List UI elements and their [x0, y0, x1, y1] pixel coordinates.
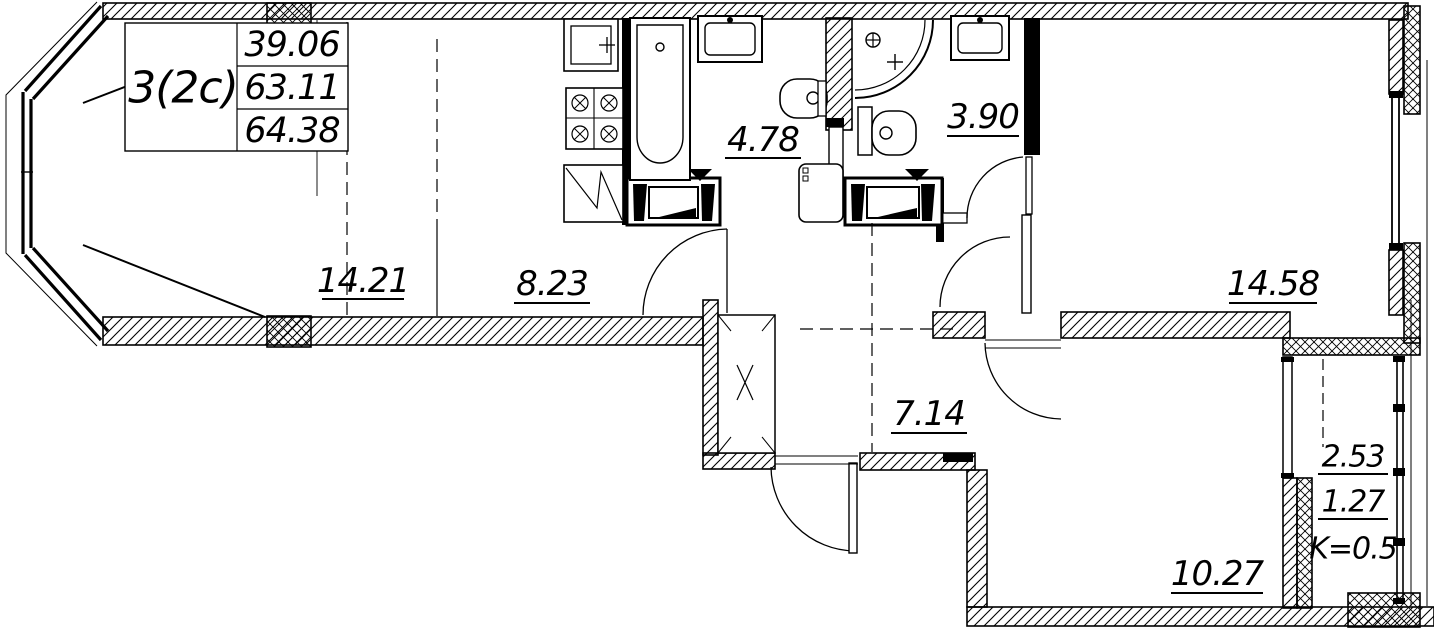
pier-right-top — [1404, 6, 1420, 114]
room-label-wc: 3.90 — [947, 97, 1019, 137]
washing-machine — [799, 164, 843, 222]
wall-wc-right-thin — [1022, 215, 1031, 313]
room-label-bedroom-right: 14.58 — [1227, 264, 1320, 304]
wall-room-bottom-left — [967, 470, 987, 607]
wc-sink — [951, 16, 1009, 60]
toilet-right — [858, 107, 916, 155]
title-block: 3(2с) 39.06 63.11 64.38 — [125, 23, 348, 151]
door-leaf-wc — [1026, 157, 1032, 214]
door-leaf-entry — [849, 463, 857, 553]
wall-balcony-corner-block — [1348, 593, 1420, 627]
living-area-value: 39.06 — [244, 25, 339, 65]
bath-sink — [698, 16, 762, 62]
wall-shaft-bottom — [703, 453, 775, 469]
balcony-reduced-area: 1.27 — [1322, 485, 1386, 520]
wall-wc-right — [1024, 18, 1040, 155]
balcony-coefficient: K=0.5 — [1309, 532, 1397, 567]
room-label-living: 14.21 — [317, 261, 409, 301]
wall-balcony-partition-inner — [1283, 478, 1297, 608]
stove — [566, 88, 623, 149]
kitchen-sink — [564, 19, 618, 71]
room-label-bathroom: 4.78 — [727, 120, 799, 160]
total-area-value: 64.38 — [244, 111, 339, 151]
ventilation-shaft — [718, 315, 775, 453]
wall-stub-hall — [941, 213, 967, 223]
wall-bottom-left — [103, 317, 703, 345]
room-label-kitchen: 8.23 — [516, 264, 588, 304]
apartment-type-label: 3(2с) — [128, 63, 238, 114]
bathroom-door-unit-right — [845, 169, 942, 225]
wall-balcony-top — [1283, 338, 1420, 355]
kitchen-fixtures — [564, 19, 623, 222]
fridge-niche — [564, 165, 623, 222]
wall-shaft-left — [703, 300, 718, 455]
room-label-hallway: 7.14 — [893, 394, 965, 434]
floor-plan-svg: 3(2с) 39.06 63.11 64.38 14.21 8.23 4.78 … — [0, 0, 1434, 629]
wall-under-bedroom-b — [1061, 312, 1290, 338]
bay-pier-bottom — [267, 316, 311, 347]
shaft-box — [718, 315, 775, 453]
room-label-bedroom-bottom: 10.27 — [1171, 554, 1265, 594]
wall-between-baths — [826, 18, 852, 130]
pier-right-mid — [1404, 243, 1420, 343]
entry-door-block — [943, 453, 973, 462]
window-room-to-balcony — [1281, 357, 1294, 478]
wall-under-bedroom-a — [933, 312, 985, 338]
toilet-left — [780, 79, 827, 118]
balcony-full-area: 2.53 — [1322, 440, 1385, 475]
pier-right-mid-inner — [1389, 250, 1403, 315]
floor-plan-page: 3(2с) 39.06 63.11 64.38 14.21 8.23 4.78 … — [0, 0, 1434, 629]
area-value: 63.11 — [244, 68, 339, 108]
wall-between-baths-cap — [826, 118, 844, 127]
bathtub — [630, 18, 690, 180]
pier-right-top-inner — [1389, 20, 1403, 94]
